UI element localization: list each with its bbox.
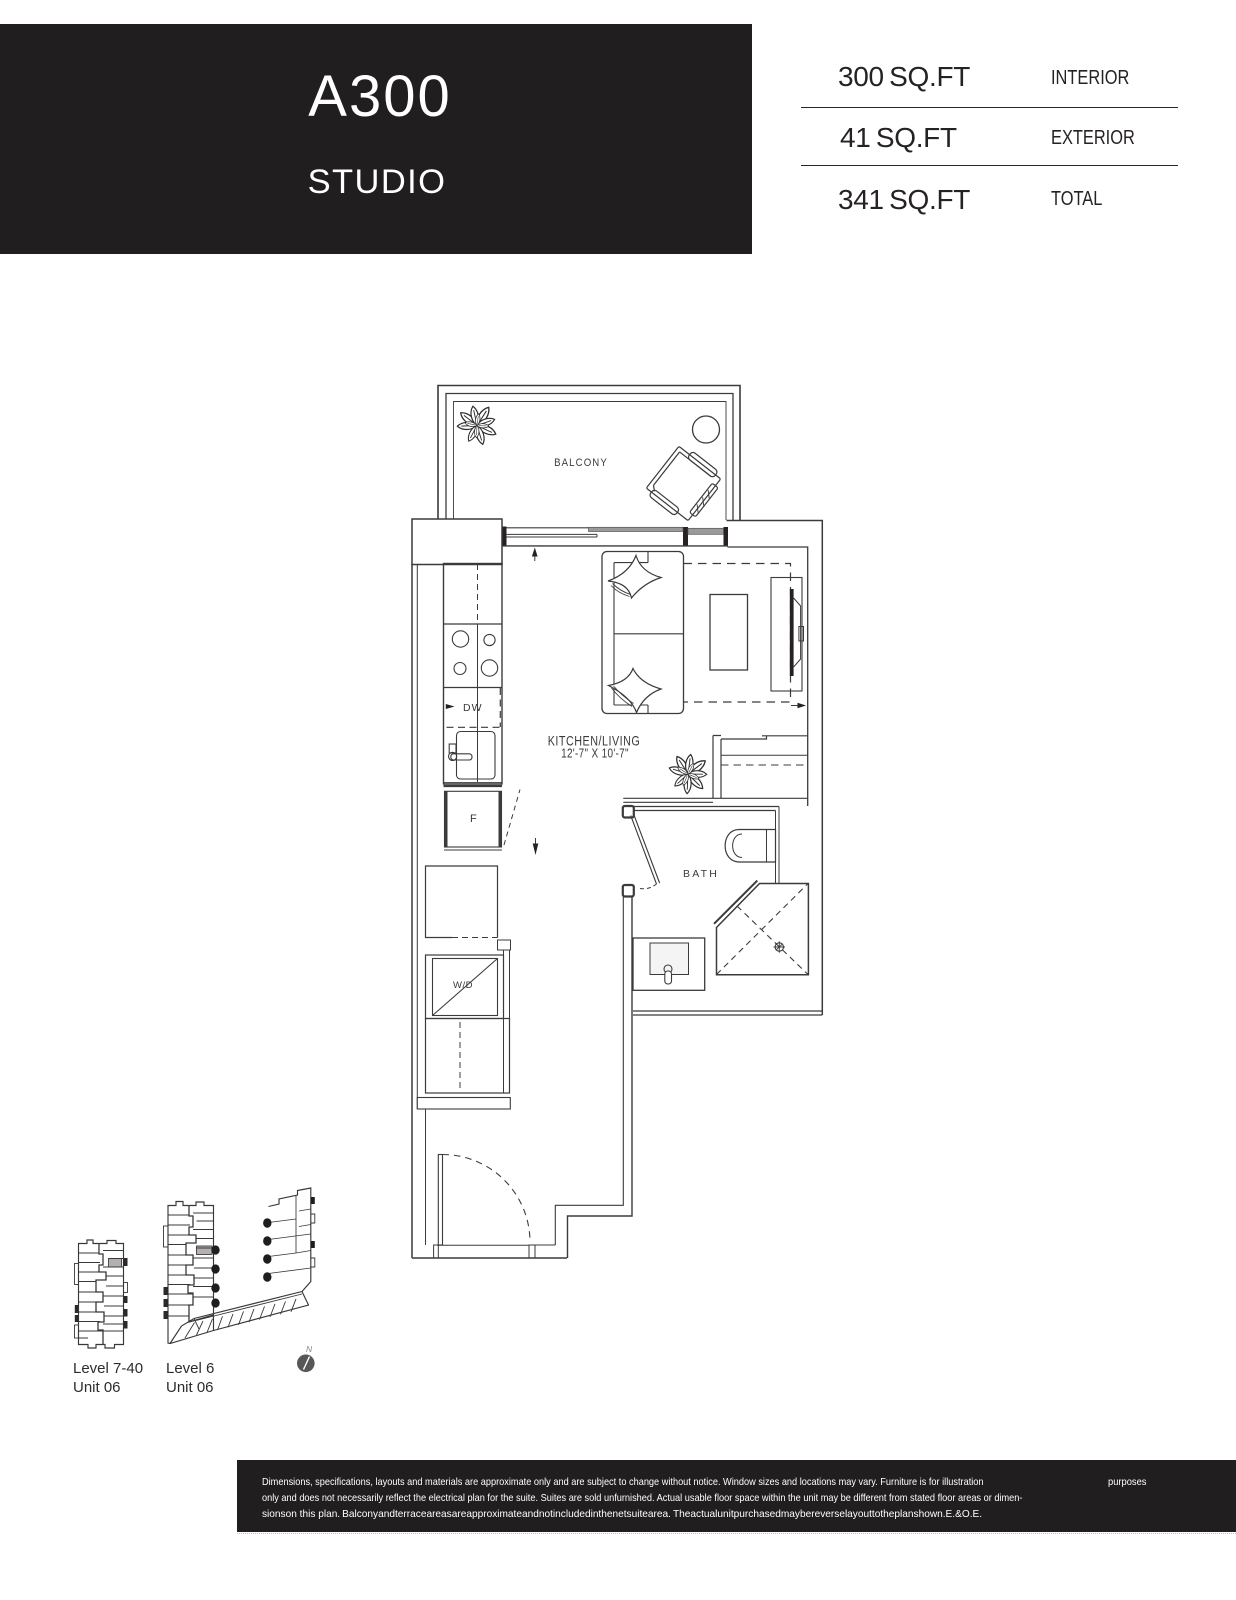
svg-text:12'-7" X 10'-7": 12'-7" X 10'-7" [561, 748, 629, 761]
svg-text:W/D: W/D [453, 980, 473, 991]
svg-text:BALCONY: BALCONY [554, 456, 608, 469]
svg-text:KITCHEN/LIVING: KITCHEN/LIVING [548, 733, 641, 748]
svg-text:DW: DW [463, 702, 483, 714]
svg-text:BATH: BATH [683, 868, 719, 880]
svg-text:N: N [306, 1344, 313, 1354]
svg-text:F: F [470, 813, 477, 825]
